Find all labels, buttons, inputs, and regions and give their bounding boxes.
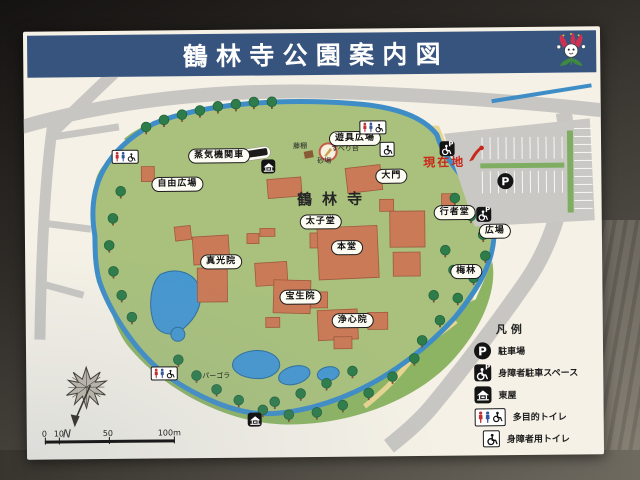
photo-of-sign: 鶴林寺公園案内図	[0, 0, 640, 480]
sign-header: 鶴林寺公園案内図	[27, 30, 596, 77]
label-plum-grove: 梅林	[450, 264, 482, 279]
legend-row-multipurpose-toilet: 多目的トイレ	[475, 407, 601, 425]
label-shinkoin: 真光院	[200, 254, 242, 269]
legend-row-accessible-parking: P 身障者駐車スペース	[474, 363, 600, 381]
legend: 凡例 P 駐車場 P 身障者駐車スペース 東屋	[474, 320, 601, 452]
label-plaza: 広場	[479, 224, 511, 239]
label-sandbox: 砂場	[317, 156, 331, 166]
label-hoshoin: 宝生院	[279, 289, 321, 304]
parking-icon: P	[474, 342, 491, 359]
label-free-plaza: 自由広場	[151, 177, 203, 192]
label-taishido: 太子堂	[300, 214, 342, 229]
park-map: 蒸気機関車 自由広場 遊具広場 大門 太子堂 本堂 行者堂 広場 真光院 宝生院…	[23, 72, 604, 460]
label-hondo: 本堂	[331, 240, 363, 255]
sign-board: 鶴林寺公園案内図	[23, 26, 604, 460]
mascot-flower-icon	[552, 32, 590, 70]
accessible-parking-icon: P	[476, 207, 491, 222]
accessible-toilet-icon	[380, 142, 395, 157]
legend-row-parking: P 駐車場	[474, 341, 600, 359]
label-gyojado: 行者堂	[434, 205, 476, 220]
sign-title: 鶴林寺公園案内図	[174, 35, 449, 74]
compass-rose: N	[48, 359, 125, 446]
multipurpose-toilet-icon	[151, 366, 178, 380]
gazebo-icon	[474, 386, 491, 403]
gazebo-icon	[248, 413, 262, 427]
accessible-parking-icon: P	[440, 141, 455, 156]
multipurpose-toilet-icon	[475, 408, 506, 426]
label-pergola: パーゴラ	[202, 371, 230, 381]
left-road	[38, 117, 56, 339]
accessible-toilet-icon	[483, 430, 500, 447]
legend-title: 凡例	[496, 320, 600, 337]
label-wisteria: 藤棚	[293, 141, 307, 151]
label-daimon: 大門	[375, 169, 407, 184]
gazebo-icon	[261, 159, 275, 173]
label-slide: すべり台	[331, 144, 359, 154]
legend-row-accessible-toilet: 身障者用トイレ	[475, 429, 601, 447]
north-label: N	[63, 427, 71, 440]
multipurpose-toilet-icon	[359, 120, 386, 134]
parking-icon: P	[497, 173, 513, 189]
label-temple-name: 鶴林寺	[287, 188, 372, 210]
label-locomotive: 蒸気機関車	[188, 148, 250, 164]
label-joshinin: 浄心院	[332, 313, 374, 328]
pond	[232, 350, 279, 379]
multipurpose-toilet-icon	[112, 150, 139, 164]
accessible-parking-icon: P	[474, 364, 491, 381]
legend-row-gazebo: 東屋	[474, 385, 600, 403]
